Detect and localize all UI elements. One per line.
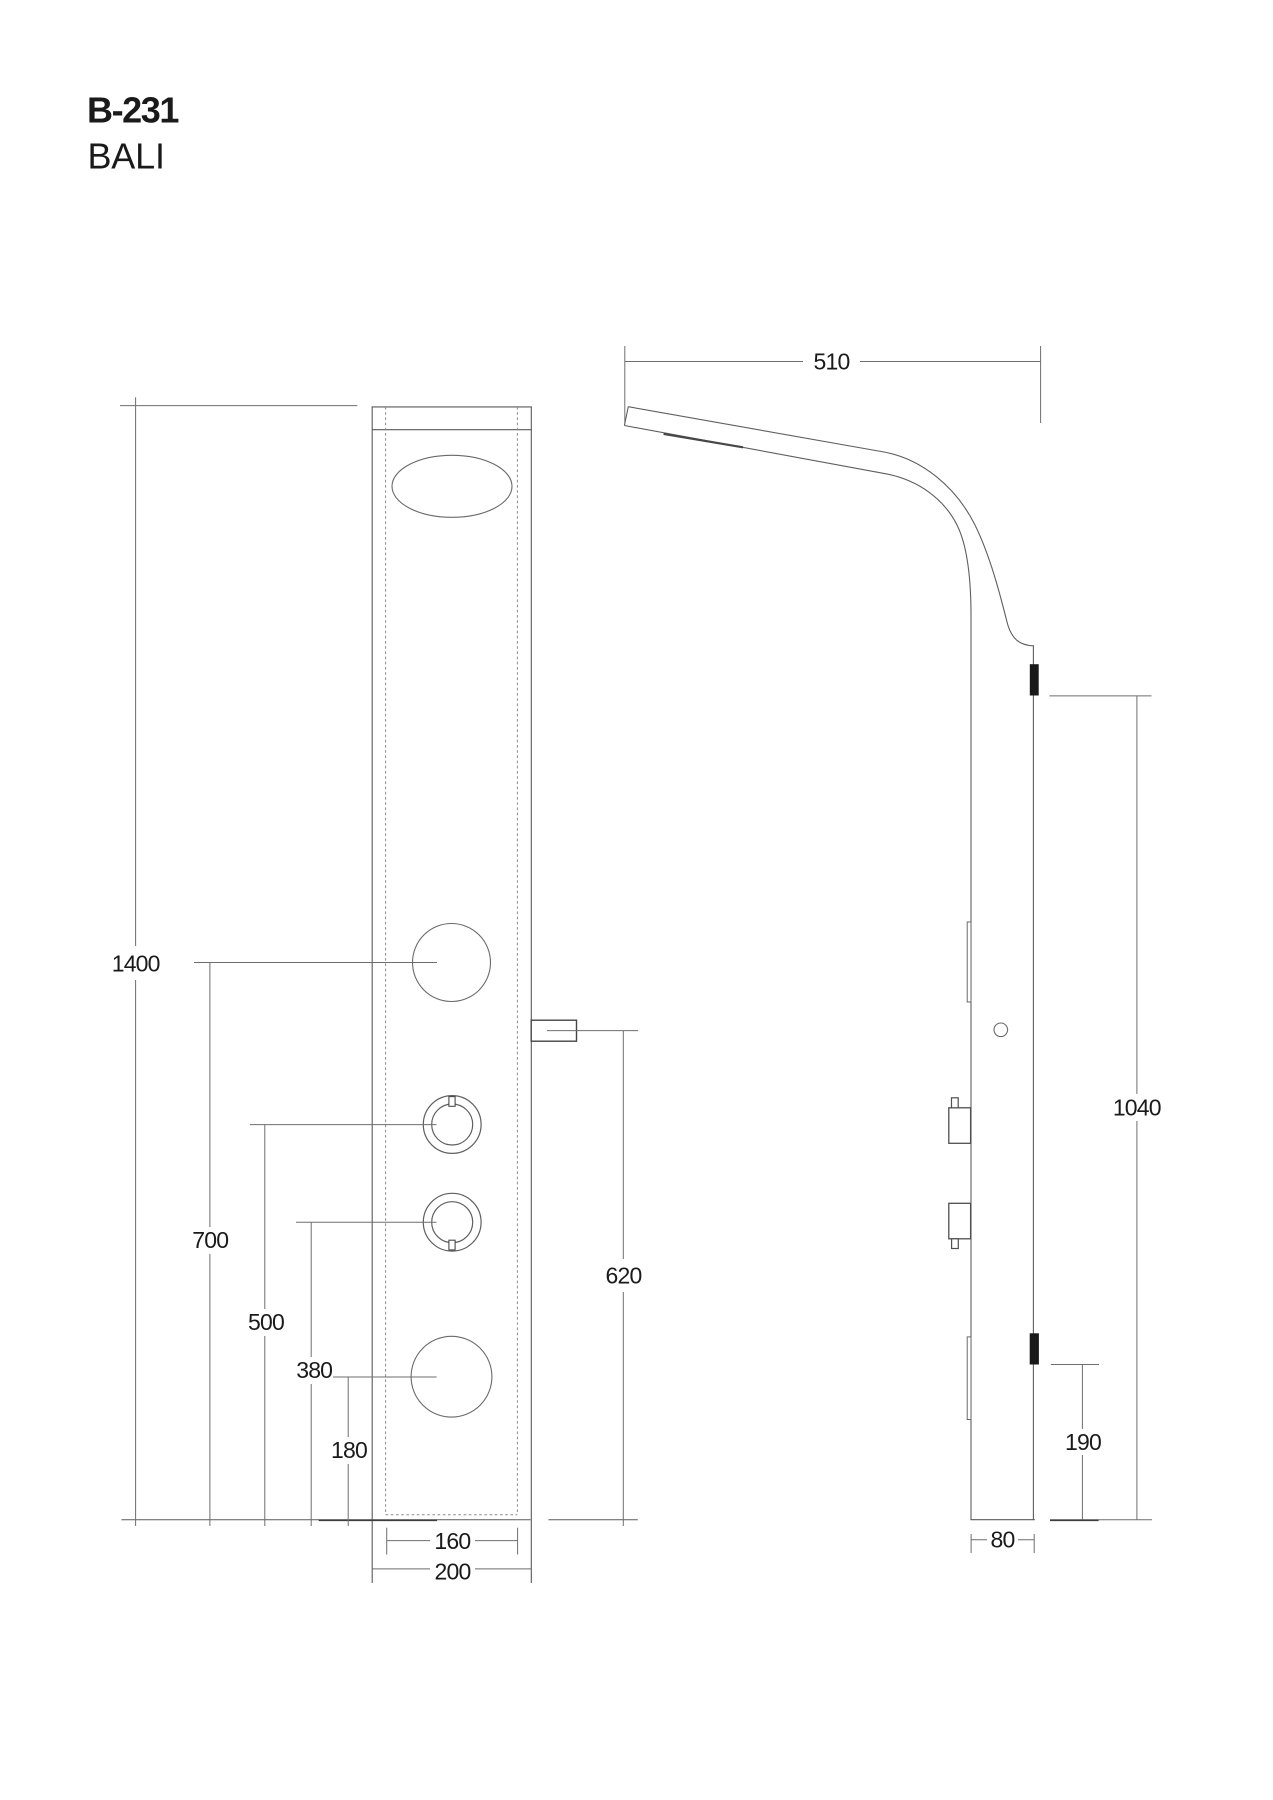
svg-text:80: 80 bbox=[991, 1527, 1015, 1553]
svg-text:1040: 1040 bbox=[1113, 1095, 1161, 1121]
svg-text:510: 510 bbox=[814, 348, 850, 374]
svg-text:380: 380 bbox=[296, 1357, 332, 1383]
svg-text:700: 700 bbox=[192, 1227, 228, 1253]
svg-text:620: 620 bbox=[606, 1263, 642, 1289]
svg-text:200: 200 bbox=[435, 1558, 471, 1584]
svg-text:B-231: B-231 bbox=[87, 90, 179, 131]
svg-text:180: 180 bbox=[331, 1437, 367, 1463]
svg-text:190: 190 bbox=[1065, 1429, 1101, 1455]
svg-text:160: 160 bbox=[434, 1528, 470, 1554]
svg-text:500: 500 bbox=[248, 1309, 284, 1335]
svg-text:1400: 1400 bbox=[112, 951, 160, 977]
svg-text:BALI: BALI bbox=[88, 136, 165, 177]
